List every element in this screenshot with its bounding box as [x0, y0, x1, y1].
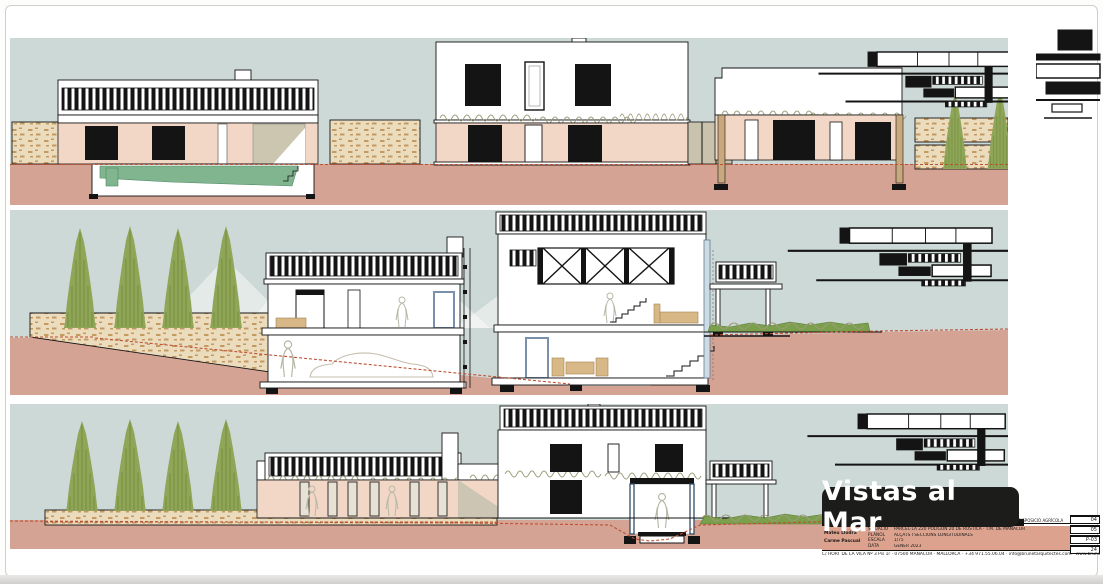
narrow-window [830, 122, 842, 160]
basement-garage [268, 335, 460, 382]
door [218, 124, 227, 164]
timber-post [718, 115, 725, 183]
sideboard [276, 318, 306, 328]
stair-tower [442, 433, 458, 480]
pergola-louvre-band [269, 457, 457, 476]
ground-door [525, 125, 542, 164]
margin-detail-drawing [1036, 28, 1102, 158]
pergola-louvre-band [270, 256, 458, 276]
tan-wall [253, 124, 305, 164]
pergola-louvre-band [500, 215, 702, 231]
section-panel-middle [10, 210, 1008, 395]
blue-door [526, 338, 548, 378]
sheet-number: 05 [1070, 525, 1100, 534]
stone-wall-middle [330, 120, 420, 164]
title-block-row: DATA GENER 2023 [868, 544, 1068, 550]
entrance-gate [624, 478, 700, 544]
pergola-louvre-band [504, 409, 702, 427]
sheet-edge-shadow [0, 575, 1103, 584]
sheet-number: 04 [1070, 515, 1100, 524]
glass-edge [704, 240, 710, 378]
sheet-code: P-03 [1070, 535, 1100, 544]
pergola-louvre-band [62, 88, 314, 110]
plan-sheet: Vistas al Mar DISPOSICIÓ AGRÍCOLA Mateu … [0, 0, 1103, 584]
sheet-numbers: 04 05 P-03 24 [1070, 515, 1100, 555]
stone-wall-left [12, 122, 62, 164]
blue-door [434, 292, 454, 328]
single-storey-house [58, 70, 318, 164]
elevation-panel-top [10, 38, 1008, 205]
row-label: DATA [868, 544, 894, 550]
studio-address: C/ HORT DE LA VILA Nº 3 Pis 1r · 07500 M… [822, 552, 1100, 557]
row-value: GENER 2023 [894, 544, 1068, 550]
pool-section [89, 164, 315, 199]
title-block-note: DISPOSICIÓ AGRÍCOLA [1018, 519, 1070, 524]
architect-name: Carme Pascual [824, 538, 866, 546]
timber-post [896, 115, 903, 183]
badge-label: Vistas al Mar [822, 476, 1019, 538]
balcony-door [525, 62, 544, 110]
vistas-al-mar-badge: Vistas al Mar [822, 487, 1019, 527]
narrow-window [745, 120, 758, 160]
x-braced-glazing [538, 248, 674, 284]
two-storey-house [434, 38, 732, 165]
